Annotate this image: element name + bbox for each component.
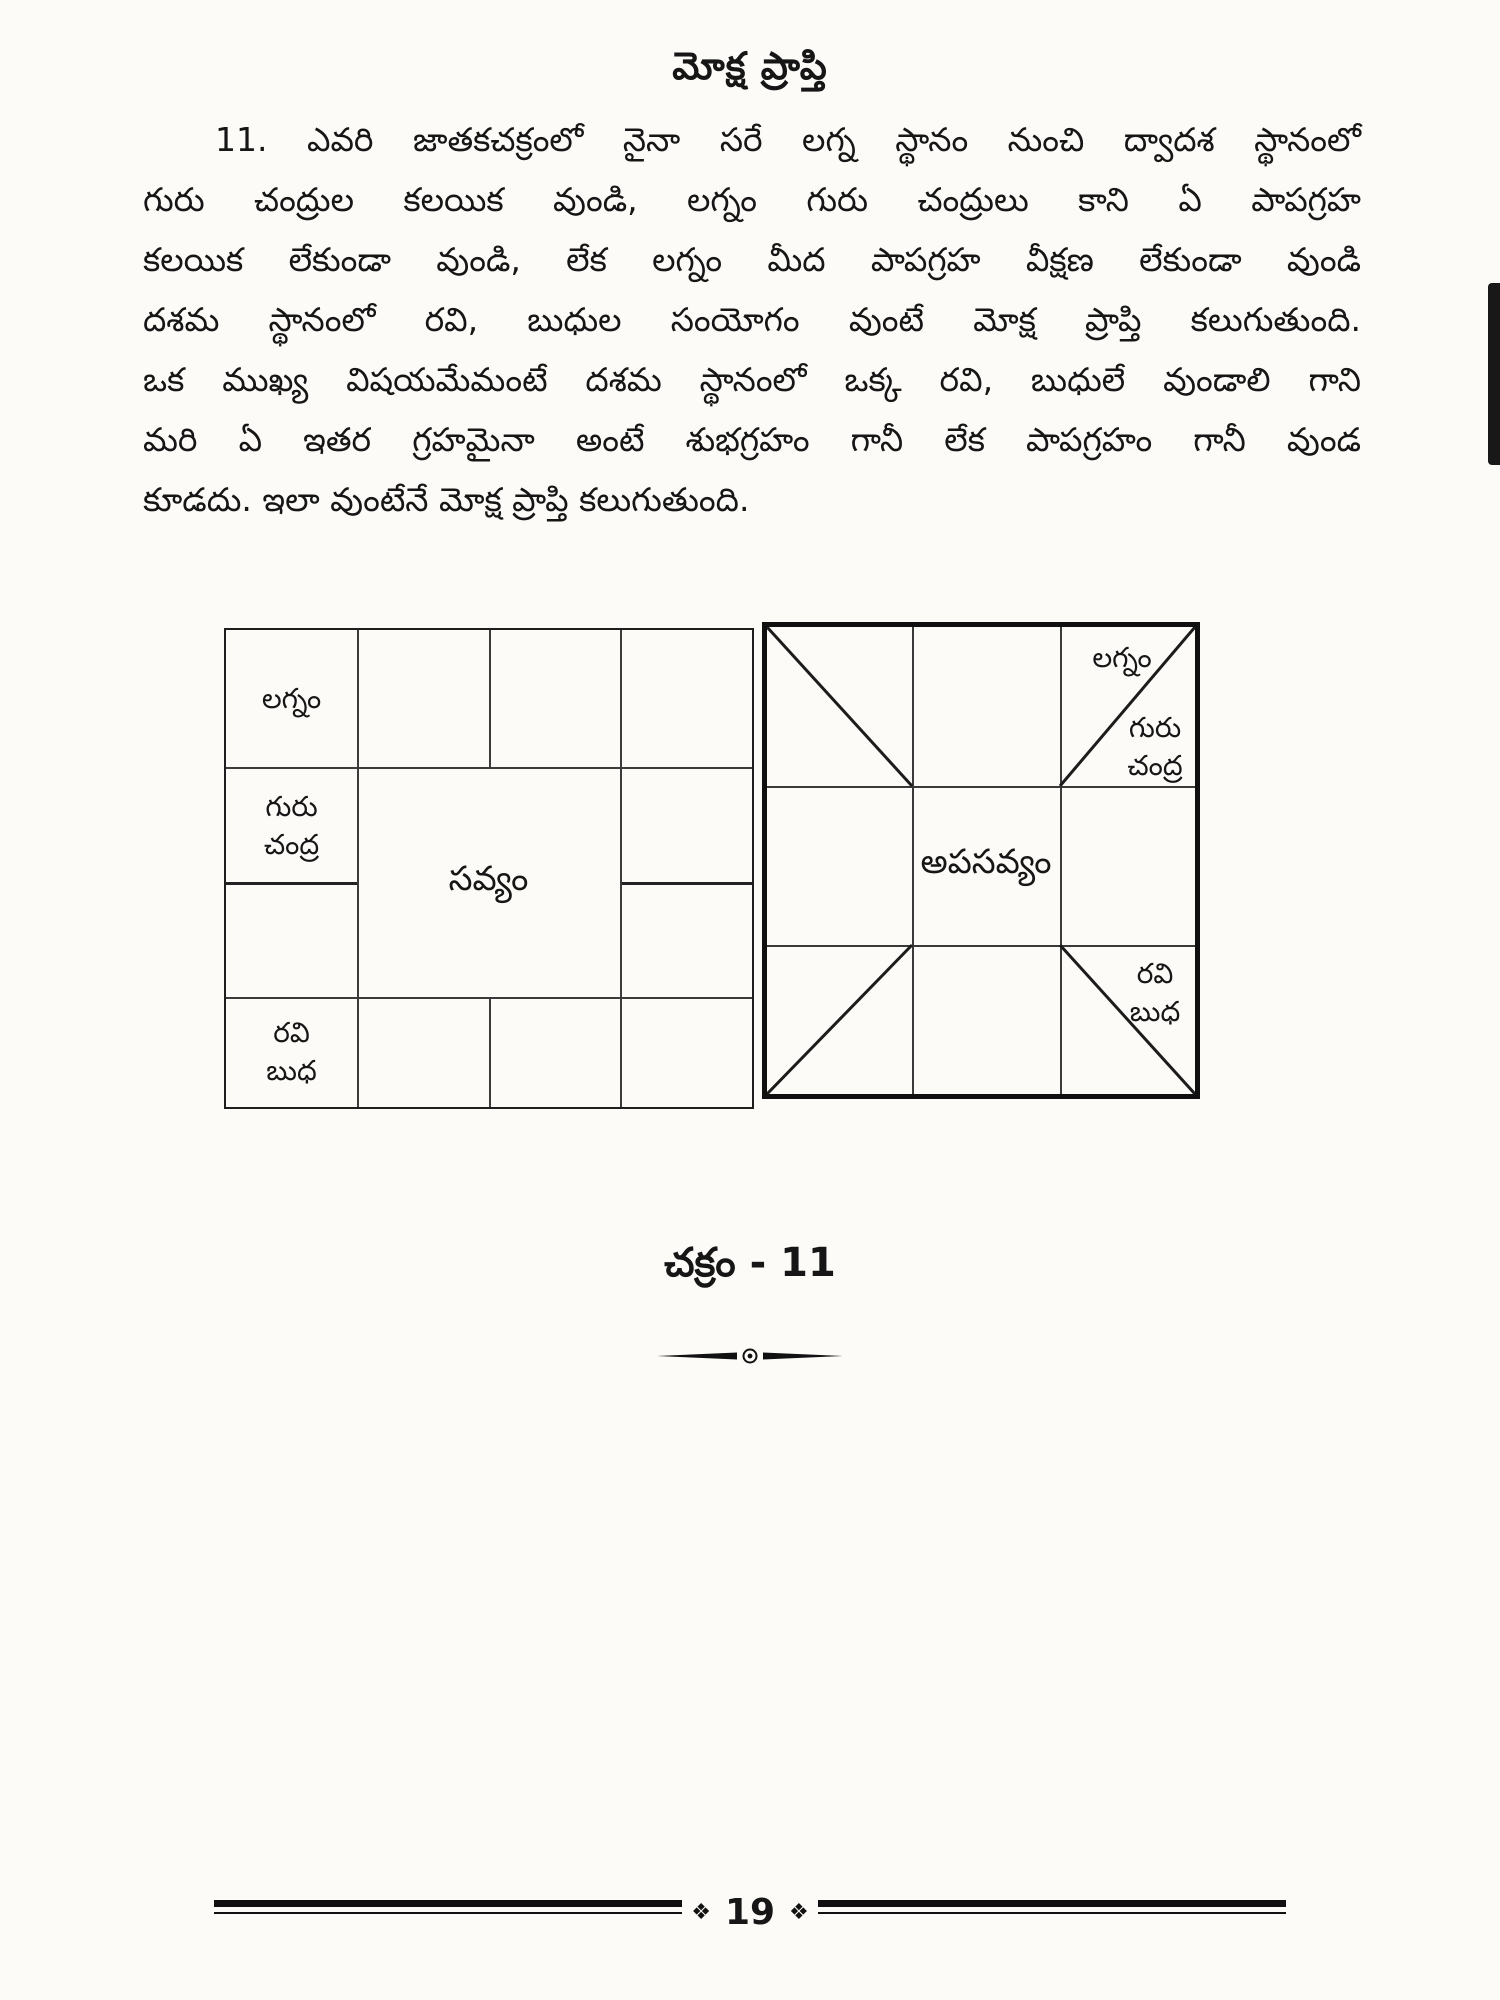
ravi-budha-cell-label: రవి బుధ <box>1115 955 1195 1031</box>
grid-line <box>489 997 491 1107</box>
paragraph-line: ఒక ముఖ్య విషయమేమంటే దశమ స్థానంలో ఒక్క రవ… <box>143 350 1361 410</box>
diamond-ornament-icon: ❖ <box>691 1900 711 1925</box>
footer-rule-right <box>818 1900 1286 1914</box>
guru-label: గురు <box>1115 709 1195 747</box>
paragraph-line: కలయిక లేకుండా వుండి, లేక లగ్నం మీద పాపగ్… <box>143 230 1361 290</box>
grid-line <box>489 630 491 767</box>
paragraph-line: 11. ఎవరి జాతకచక్రంలో నైనా సరే లగ్న స్థాన… <box>143 110 1361 170</box>
book-page: మోక్ష ప్రాప్తి 11. ఎవరి జాతకచక్రంలో నైనా… <box>0 0 1500 2000</box>
ravi-budha-cell-label: రవి బుధ <box>226 1014 357 1090</box>
guru-chandra-cell-label: గురు చంద్ర <box>1115 709 1195 785</box>
ravi-label: రవి <box>226 1014 357 1052</box>
lagnam-cell-label: లగ్నం <box>226 680 357 718</box>
paragraph-line: కూడదు. ఇలా వుంటేనే మోక్ష ప్రాప్తి కలుగుత… <box>143 470 1361 530</box>
grid-line <box>620 882 752 885</box>
apasavyam-direction-label: అపసవ్యం <box>912 786 1060 945</box>
paragraph-line: దశమ స్థానంలో రవి, బుధుల సంయోగం వుంటే మోక… <box>143 290 1361 350</box>
body-paragraph: 11. ఎవరి జాతకచక్రంలో నైనా సరే లగ్న స్థాన… <box>143 110 1361 530</box>
lagnam-cell-label: లగ్నం <box>1062 639 1182 677</box>
budha-label: బుధ <box>226 1052 357 1090</box>
apasavyam-chart: లగ్నం గురు చంద్ర రవి బుధ అపసవ్యం <box>762 622 1200 1099</box>
divider-ornament-icon <box>655 1346 845 1366</box>
diamond-ornament-icon: ❖ <box>789 1900 809 1925</box>
figure-caption: చక్రం - 11 <box>0 1240 1500 1296</box>
grid-line <box>620 630 622 1107</box>
chandra-label: చంద్ర <box>1115 747 1195 785</box>
ravi-label: రవి <box>1115 955 1195 993</box>
page-title: మోక్ష ప్రాప్తి <box>0 44 1500 98</box>
grid-line <box>226 882 357 885</box>
page-number: 19 <box>725 1892 775 1933</box>
footer-rule-left <box>214 1900 682 1914</box>
chandra-label: చంద్ర <box>226 826 357 864</box>
paragraph-line: మరి ఏ ఇతర గ్రహమైనా అంటే శుభగ్రహం గానీ లే… <box>143 410 1361 470</box>
savyam-direction-label: సవ్యం <box>357 769 620 997</box>
budha-label: బుధ <box>1115 993 1195 1031</box>
guru-chandra-cell-label: గురు చంద్ర <box>226 788 357 864</box>
savyam-chart: లగ్నం గురు చంద్ర రవి బుధ సవ్యం <box>224 628 754 1109</box>
paragraph-line: గురు చంద్రుల కలయిక వుండి, లగ్నం గురు చంద… <box>143 170 1361 230</box>
guru-label: గురు <box>226 788 357 826</box>
scan-artifact <box>1488 283 1500 465</box>
page-footer: ❖ 19 ❖ <box>682 1892 818 1933</box>
